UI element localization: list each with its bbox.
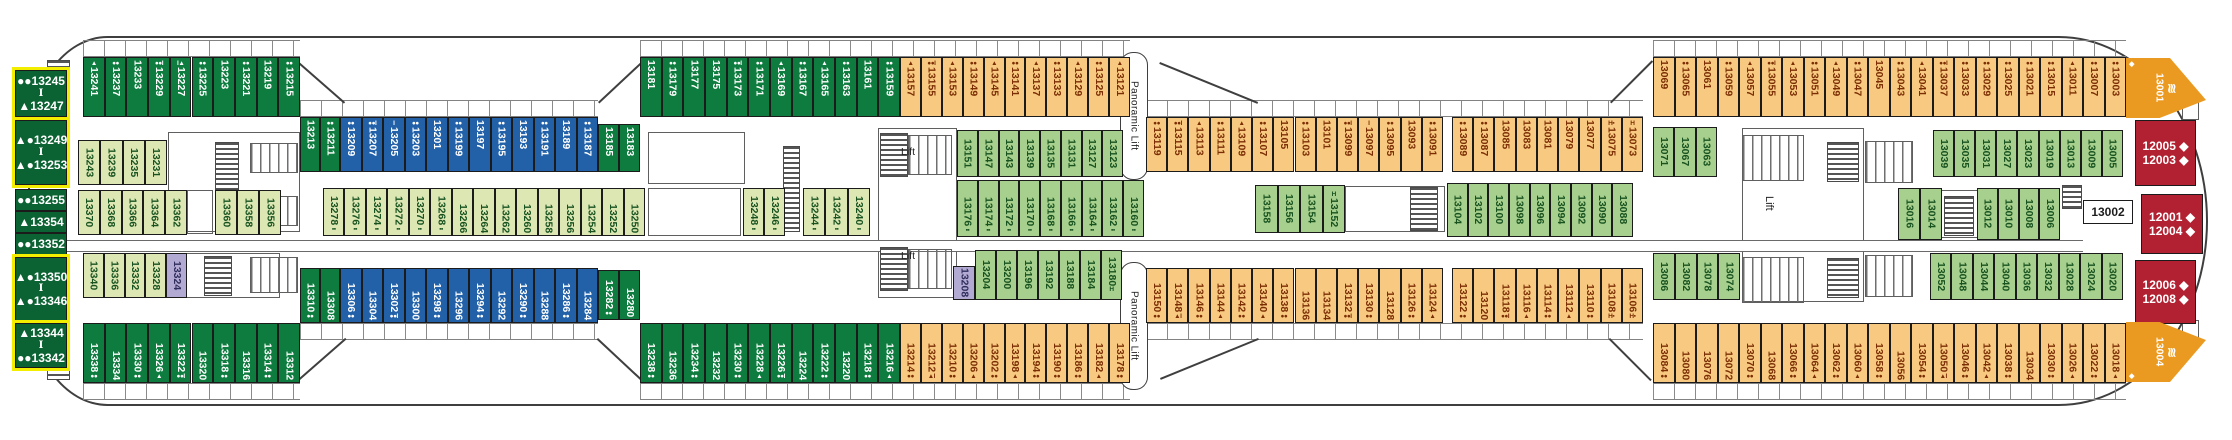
cabin-13152[interactable]: H13152 — [1323, 185, 1346, 233]
cabin-13240[interactable]: 13240▪▪ — [848, 188, 870, 236]
cabin-13068[interactable]: 13068 — [1761, 323, 1783, 383]
cabin-13032[interactable]: 13032 — [2037, 253, 2058, 300]
cabin-13272[interactable]: 13272▪▪ — [387, 188, 408, 236]
cabin-13170[interactable]: 13170▪▪ — [1019, 180, 1040, 237]
cabin-13029[interactable]: ●●13029 — [1976, 57, 1998, 117]
cabin-13188[interactable]: 13188 — [1059, 250, 1080, 300]
cabin-13085[interactable]: 13085 — [1494, 117, 1515, 172]
cabin-13192[interactable]: 13192 — [1038, 250, 1059, 300]
cabin-13220[interactable]: 13220 — [835, 323, 857, 383]
cabin-13221[interactable]: ●●13221 — [235, 57, 257, 117]
cabin-13191[interactable]: ●●13191 — [534, 117, 556, 172]
cabin-13216[interactable]: 13216▲ — [878, 323, 900, 383]
cabin-13062[interactable]: 13062●● — [1825, 323, 1847, 383]
cabin-13234[interactable]: 13234●● — [683, 323, 705, 383]
cabin-13150[interactable]: 13150●● — [1146, 268, 1167, 323]
cabin-13204[interactable]: 13204 — [975, 250, 996, 300]
tip-13255[interactable]: ●●13255 — [15, 189, 67, 211]
cabin-13274[interactable]: 13274▪▪ — [366, 188, 387, 236]
cabin-13089[interactable]: ●●13089 — [1452, 117, 1473, 172]
cabin-13114[interactable]: 13114●● — [1537, 268, 1558, 323]
cabin-13244[interactable]: 13244▪▪ — [803, 188, 825, 236]
cabin-13039[interactable]: 13039 — [1933, 130, 1954, 177]
cabin-13141[interactable]: ●●13141 — [1005, 57, 1026, 117]
cabin-13195[interactable]: ●●13195 — [491, 117, 513, 172]
cabin-13111[interactable]: ●●13111 — [1210, 117, 1231, 172]
cabin-13229[interactable]: ●●I13229 — [148, 57, 170, 117]
cabin-13222[interactable]: 13222●● — [813, 323, 835, 383]
cabin-13056[interactable]: 13056 — [1890, 323, 1912, 383]
cabin-13088[interactable]: 13088 — [1612, 183, 1633, 237]
cabin-13149[interactable]: ●●13149 — [963, 57, 984, 117]
cabin-13177[interactable]: 13177 — [683, 57, 705, 117]
cabin-13248[interactable]: 13248▪▪ — [743, 188, 764, 236]
cabin-13133[interactable]: ●●13133 — [1046, 57, 1067, 117]
cabin-13163[interactable]: ●●13163 — [835, 57, 857, 117]
cabin-13241[interactable]: ▲13241 — [83, 57, 105, 117]
cabin-13116[interactable]: 13116▲ — [1516, 268, 1537, 323]
cabin-13155[interactable]: ●●I13155 — [921, 57, 942, 117]
cabin-13148[interactable]: 13148▲I — [1167, 268, 1188, 323]
cabin-13075[interactable]: H▪13075 — [1601, 117, 1622, 172]
cabin-13028[interactable]: 13028 — [2059, 253, 2080, 300]
cabin-13300[interactable]: 13300 — [405, 268, 427, 323]
cabin-13087[interactable]: ●●13087 — [1473, 117, 1494, 172]
cabin-13358[interactable]: 13358 — [237, 190, 259, 235]
cabin-13073[interactable]: H13073 — [1622, 117, 1643, 172]
cabin-13264[interactable]: 13264 — [473, 188, 494, 236]
cabin-13156[interactable]: 13156 — [1278, 185, 1301, 233]
cabin-13058[interactable]: 13058●● — [1868, 323, 1890, 383]
suite-12005-12003[interactable]: 12005 ◆12003 ◆ — [2135, 120, 2196, 186]
cabin-13118[interactable]: 13118●●I — [1494, 268, 1515, 323]
cabin-13368[interactable]: 13368 — [100, 190, 122, 235]
cabin-13110[interactable]: 13110●● — [1579, 268, 1600, 323]
cabin-13119[interactable]: ●●13119 — [1146, 117, 1167, 172]
cabin-13276[interactable]: 13276▪▪ — [344, 188, 365, 236]
cabin-13018[interactable]: 13018▲ — [2105, 323, 2127, 383]
cabin-13124[interactable]: 13124▲ — [1422, 268, 1443, 323]
cabin-13040[interactable]: 13040 — [1994, 253, 2015, 300]
cabin-13246[interactable]: 13246▪▪ — [764, 188, 785, 236]
cabin-13006[interactable]: 13006 — [2039, 188, 2060, 240]
tip-13354[interactable]: ▲13354 — [15, 211, 67, 233]
cabin-13360[interactable]: 13360 — [215, 190, 237, 235]
cabin-13090[interactable]: 13090 — [1592, 183, 1613, 237]
cabin-13121[interactable]: ▲13121 — [1109, 57, 1130, 117]
cabin-13030[interactable]: 13030●● — [2040, 323, 2062, 383]
cabin-13286[interactable]: 13286●● — [555, 268, 577, 323]
cabin-13223[interactable]: 13223 — [213, 57, 235, 117]
cabin-13235[interactable]: 13235 — [123, 140, 145, 185]
cabin-13101[interactable]: 13101 — [1316, 117, 1337, 172]
cabin-13166[interactable]: 13166▪▪ — [1061, 180, 1082, 237]
cabin-13186[interactable]: 13186●● — [1067, 323, 1088, 383]
cabin-13318[interactable]: 13318●● — [213, 323, 235, 383]
cabin-13138[interactable]: 13138●● — [1273, 268, 1294, 323]
cabin-13364[interactable]: 13364 — [143, 190, 165, 235]
cabin-13019[interactable]: 13019 — [2039, 130, 2060, 177]
cabin-13020[interactable]: 13020 — [2102, 253, 2123, 300]
cabin-13211[interactable]: ●●13211 — [320, 117, 340, 172]
cabin-13189[interactable]: 13189 — [555, 117, 577, 172]
cabin-13326[interactable]: 13326▲ — [148, 323, 170, 383]
cabin-13084[interactable]: 13084●● — [1653, 323, 1675, 383]
cabin-13322[interactable]: 13322●●I — [170, 323, 192, 383]
cabin-13066[interactable]: 13066●● — [1782, 323, 1804, 383]
cabin-13288[interactable]: 13288 — [534, 268, 556, 323]
cabin-13310[interactable]: 13310●● — [300, 268, 320, 323]
cabin-13176[interactable]: 13176▪▪ — [957, 180, 978, 237]
cabin-13008[interactable]: 13008 — [2019, 188, 2040, 240]
cabin-13340[interactable]: 13340 — [83, 253, 104, 298]
cabin-13294[interactable]: 13294●● — [469, 268, 491, 323]
cabin-13016[interactable]: 13016 — [1898, 188, 1920, 240]
cabin-13338[interactable]: 13338●● — [83, 323, 105, 383]
cabin-13071[interactable]: 13071 — [1653, 127, 1674, 177]
cabin-13190[interactable]: 13190●● — [1046, 323, 1067, 383]
cabin-13079[interactable]: 13079 — [1558, 117, 1579, 172]
cabin-13011[interactable]: ▲13011 — [2062, 57, 2084, 117]
cabin-13023[interactable]: 13023 — [2017, 130, 2038, 177]
cabin-13123[interactable]: 13123 — [1102, 130, 1123, 177]
cabin-13096[interactable]: 13096 — [1530, 183, 1551, 237]
cabin-13160[interactable]: 13160▪▪ — [1123, 180, 1144, 237]
suite-12001-12004[interactable]: 12001 ◆12004 ◆ — [2141, 194, 2203, 254]
cabin-13091[interactable]: ●●13091 — [1422, 117, 1443, 172]
cabin-13164[interactable]: 13164▪▪ — [1082, 180, 1103, 237]
cabin-13052[interactable]: 13052 — [1930, 253, 1951, 300]
cabin-13302[interactable]: 13302●●I — [383, 268, 405, 323]
cabin-13076[interactable]: 13076 — [1696, 323, 1718, 383]
cabin-13296[interactable]: 13296 — [448, 268, 470, 323]
cabin-13332[interactable]: 13332 — [125, 253, 146, 298]
cabin-13258[interactable]: 13258 — [538, 188, 559, 236]
cabin-13025[interactable]: ●●13025 — [1997, 57, 2019, 117]
cabin-13167[interactable]: ●●13167 — [792, 57, 814, 117]
cabin-13256[interactable]: 13256 — [559, 188, 580, 236]
cabin-13366[interactable]: 13366 — [122, 190, 144, 235]
cabin-13314[interactable]: 13314●● — [257, 323, 279, 383]
cabin-13278[interactable]: 13278▪▪ — [323, 188, 344, 236]
cabin-13262[interactable]: 13262 — [495, 188, 516, 236]
cabin-13193[interactable]: 13193 — [512, 117, 534, 172]
cabin-13072[interactable]: 13072 — [1718, 323, 1740, 383]
cabin-13139[interactable]: 13139 — [1019, 130, 1040, 177]
cabin-13237[interactable]: ●●13237 — [105, 57, 127, 117]
cabin-13120[interactable]: 13120 — [1473, 268, 1494, 323]
cabin-13171[interactable]: ●●13171 — [748, 57, 770, 117]
cabin-13205[interactable]: I13205 — [383, 117, 405, 172]
cabin-13145[interactable]: ▲13145 — [984, 57, 1005, 117]
cabin-13021[interactable]: ●●13021 — [2019, 57, 2041, 117]
cabin-13304[interactable]: 13304 — [362, 268, 384, 323]
cabin-13178[interactable]: 13178●● — [1109, 323, 1130, 383]
cabin-13086[interactable]: 13086 — [1653, 253, 1675, 300]
cabin-13097[interactable]: I13097 — [1358, 117, 1379, 172]
cabin-13252[interactable]: 13252 — [602, 188, 623, 236]
cabin-13002[interactable]: 13002 — [2083, 200, 2133, 224]
cabin-13324[interactable]: 13324 — [166, 253, 187, 298]
cabin-13231[interactable]: 13231 — [145, 140, 167, 185]
cabin-13054[interactable]: 13054●● — [1911, 323, 1933, 383]
cabin-13137[interactable]: ▲13137 — [1025, 57, 1046, 117]
cabin-13147[interactable]: 13147 — [978, 130, 999, 177]
cabin-13027[interactable]: 13027 — [1996, 130, 2017, 177]
cabin-13151[interactable]: 13151 — [957, 130, 978, 177]
cabin-13316[interactable]: 13316 — [235, 323, 257, 383]
cabin-13202[interactable]: 13202●● — [984, 323, 1005, 383]
cabin-13203[interactable]: ●●13203 — [405, 117, 427, 172]
tip-13249[interactable]: ▲●13249I▲●13253 — [15, 120, 67, 185]
cabin-13102[interactable]: 13102 — [1468, 183, 1489, 237]
cabin-13173[interactable]: ●●I13173 — [727, 57, 749, 117]
cabin-13059[interactable]: ●●13059 — [1718, 57, 1740, 117]
cabin-13038[interactable]: 13038●● — [1997, 323, 2019, 383]
cabin-13115[interactable]: ●●I13115 — [1167, 117, 1188, 172]
cabin-13356[interactable]: 13356 — [259, 190, 281, 235]
cabin-13093[interactable]: 13093 — [1401, 117, 1422, 172]
cabin-13036[interactable]: 13036 — [2016, 253, 2037, 300]
cabin-13074[interactable]: 13074 — [1718, 253, 1740, 300]
cabin-13005[interactable]: 13005 — [2102, 130, 2123, 177]
cabin-13024[interactable]: 13024 — [2080, 253, 2101, 300]
cabin-13179[interactable]: ●●13179 — [662, 57, 684, 117]
cabin-13154[interactable]: 13154 — [1300, 185, 1323, 233]
cabin-13046[interactable]: 13046●● — [1954, 323, 1976, 383]
cabin-13049[interactable]: ▲13049 — [1825, 57, 1847, 117]
cabin-13159[interactable]: ●●13159 — [878, 57, 900, 117]
cabin-13282[interactable]: 13282●● — [598, 270, 619, 320]
cabin-13308[interactable]: 13308 — [320, 268, 340, 323]
cabin-13044[interactable]: 13044 — [1973, 253, 1994, 300]
cabin-13215[interactable]: ●●13215 — [278, 57, 300, 117]
cabin-13158[interactable]: 13158 — [1255, 185, 1278, 233]
cabin-13143[interactable]: 13143 — [999, 130, 1020, 177]
cabin-13125[interactable]: ●●13125 — [1088, 57, 1109, 117]
cabin-13041[interactable]: ▲13041 — [1911, 57, 1933, 117]
cabin-13243[interactable]: 13243 — [78, 140, 100, 185]
cabin-13290[interactable]: 13290●● — [512, 268, 534, 323]
cabin-13069[interactable]: 13069 — [1653, 57, 1675, 117]
cabin-13057[interactable]: ▲13057 — [1739, 57, 1761, 117]
cabin-13048[interactable]: 13048 — [1951, 253, 1972, 300]
cabin-13003[interactable]: ●●13003 — [2105, 57, 2127, 117]
cabin-13080[interactable]: 13080 — [1675, 323, 1697, 383]
cabin-13219[interactable]: 13219 — [257, 57, 279, 117]
cabin-13230[interactable]: 13230●● — [727, 323, 749, 383]
cabin-13270[interactable]: 13270▪▪ — [409, 188, 430, 236]
cabin-13209[interactable]: ●●13209 — [340, 117, 362, 172]
cabin-13172[interactable]: 13172▪▪ — [999, 180, 1020, 237]
cabin-13183[interactable]: 13183 — [619, 124, 640, 172]
cabin-13105[interactable]: 13105 — [1273, 117, 1294, 172]
cabin-13266[interactable]: 13266 — [452, 188, 473, 236]
cabin-13185[interactable]: 13185 — [598, 124, 619, 172]
cabin-13012[interactable]: 13012 — [1977, 188, 1998, 240]
cabin-13009[interactable]: 13009 — [2081, 130, 2102, 177]
cabin-13142[interactable]: 13142●● — [1231, 268, 1252, 323]
cabin-13182[interactable]: 13182▲ — [1088, 323, 1109, 383]
cabin-13013[interactable]: 13013 — [2060, 130, 2081, 177]
cabin-13078[interactable]: 13078 — [1697, 253, 1719, 300]
cabin-13132[interactable]: 13132●●I — [1337, 268, 1358, 323]
cabin-13140[interactable]: 13140▲ — [1252, 268, 1273, 323]
cabin-13022[interactable]: 13022●● — [2083, 323, 2105, 383]
cabin-13051[interactable]: ●●13051 — [1804, 57, 1826, 117]
cabin-13026[interactable]: 13026▲ — [2062, 323, 2084, 383]
cabin-13161[interactable]: 13161 — [857, 57, 879, 117]
cabin-13099[interactable]: ●●I13099 — [1337, 117, 1358, 172]
cabin-13181[interactable]: 13181 — [640, 57, 662, 117]
cabin-13224[interactable]: 13224 — [792, 323, 814, 383]
cabin-13061[interactable]: 13061 — [1696, 57, 1718, 117]
cabin-13050[interactable]: 13050▲I — [1933, 323, 1955, 383]
cabin-13210[interactable]: 13210●● — [942, 323, 963, 383]
cabin-13207[interactable]: ●●I13207 — [362, 117, 384, 172]
cabin-13081[interactable]: 13081 — [1537, 117, 1558, 172]
cabin-13254[interactable]: 13254 — [581, 188, 602, 236]
cabin-13199[interactable]: ●●13199 — [448, 117, 470, 172]
cabin-13162[interactable]: 13162▪▪ — [1102, 180, 1123, 237]
cabin-13242[interactable]: 13242▪▪ — [825, 188, 847, 236]
cabin-13292[interactable]: 13292 — [491, 268, 513, 323]
cabin-13033[interactable]: ●●13033 — [1954, 57, 1976, 117]
cabin-13187[interactable]: ●●13187 — [577, 117, 599, 172]
cabin-13330[interactable]: 13330●● — [126, 323, 148, 383]
cabin-13134[interactable]: 13134 — [1316, 268, 1337, 323]
cabin-13037[interactable]: ●●I13037 — [1933, 57, 1955, 117]
cabin-13136[interactable]: 13136 — [1295, 268, 1316, 323]
cabin-13200[interactable]: 13200 — [996, 250, 1017, 300]
cabin-13146[interactable]: 13146●● — [1188, 268, 1209, 323]
cabin-13135[interactable]: 13135 — [1040, 130, 1061, 177]
cabin-13201[interactable]: 13201 — [426, 117, 448, 172]
cabin-13082[interactable]: 13082 — [1675, 253, 1697, 300]
cabin-13060[interactable]: 13060▲ — [1847, 323, 1869, 383]
cabin-13174[interactable]: 13174▪▪ — [978, 180, 999, 237]
cabin-13144[interactable]: 13144▲ — [1210, 268, 1231, 323]
cabin-13320[interactable]: 13320 — [192, 323, 214, 383]
cabin-13015[interactable]: ●●13015 — [2040, 57, 2062, 117]
cabin-13126[interactable]: 13126●● — [1401, 268, 1422, 323]
cabin-13336[interactable]: 13336 — [104, 253, 125, 298]
cabin-13233[interactable]: 13233 — [126, 57, 148, 117]
cabin-13184[interactable]: 13184 — [1080, 250, 1101, 300]
cabin-13213[interactable]: 13213 — [300, 117, 320, 172]
cabin-13298[interactable]: 13298●● — [426, 268, 448, 323]
cabin-13362[interactable]: 13362 — [165, 190, 187, 235]
cabin-13031[interactable]: 13031 — [1975, 130, 1996, 177]
cabin-13107[interactable]: ●●13107 — [1252, 117, 1273, 172]
cabin-13180[interactable]: 13180H — [1101, 250, 1122, 300]
cabin-13128[interactable]: 13128 — [1379, 268, 1400, 323]
cabin-13226[interactable]: 13226●●I — [770, 323, 792, 383]
cabin-13077[interactable]: 13077 — [1579, 117, 1600, 172]
cabin-13047[interactable]: ●●13047 — [1847, 57, 1869, 117]
cabin-13197[interactable]: 13197 — [469, 117, 491, 172]
cabin-13010[interactable]: 13010 — [1998, 188, 2019, 240]
cabin-13169[interactable]: ▲13169 — [770, 57, 792, 117]
cabin-13065[interactable]: ●●13065 — [1675, 57, 1697, 117]
cabin-13280[interactable]: 13280 — [619, 270, 640, 320]
cabin-13053[interactable]: ▲13053 — [1782, 57, 1804, 117]
cabin-13127[interactable]: 13127 — [1082, 130, 1103, 177]
cabin-13109[interactable]: ▲13109 — [1231, 117, 1252, 172]
cabin-13218[interactable]: 13218●● — [857, 323, 879, 383]
cabin-13063[interactable]: 13063 — [1696, 127, 1717, 177]
cabin-13094[interactable]: 13094 — [1550, 183, 1571, 237]
cabin-13129[interactable]: ▲13129 — [1067, 57, 1088, 117]
cabin-13168[interactable]: 13168▪▪ — [1040, 180, 1061, 237]
cabin-13268[interactable]: 13268▪▪ — [430, 188, 451, 236]
cabin-13153[interactable]: ▲13153 — [942, 57, 963, 117]
cabin-13131[interactable]: 13131 — [1061, 130, 1082, 177]
cabin-13100[interactable]: 13100 — [1488, 183, 1509, 237]
cabin-13112[interactable]: 13112▲ — [1558, 268, 1579, 323]
tip-13344[interactable]: ▲13344I●●13342 — [15, 323, 67, 368]
cabin-13055[interactable]: ●●I13055 — [1761, 57, 1783, 117]
cabin-13043[interactable]: ●●13043 — [1890, 57, 1912, 117]
cabin-13208[interactable]: 13208 — [953, 266, 975, 300]
cabin-13196[interactable]: 13196 — [1017, 250, 1038, 300]
cabin-13328[interactable]: 13328 — [145, 253, 166, 298]
cabin-13130[interactable]: 13130●● — [1358, 268, 1379, 323]
tip-13352[interactable]: ●●13352 — [15, 233, 67, 255]
cabin-13232[interactable]: 13232 — [705, 323, 727, 383]
cabin-13098[interactable]: 13098 — [1509, 183, 1530, 237]
cabin-13238[interactable]: 13238●● — [640, 323, 662, 383]
cabin-13165[interactable]: ▲13165 — [813, 57, 835, 117]
tip-13350[interactable]: ▲●13350I▲●13346 — [15, 257, 67, 321]
cabin-13236[interactable]: 13236 — [662, 323, 684, 383]
cabin-13035[interactable]: 13035 — [1954, 130, 1975, 177]
cabin-13103[interactable]: ●●13103 — [1295, 117, 1316, 172]
cabin-13227[interactable]: I▲13227 — [170, 57, 192, 117]
cabin-13108[interactable]: 13108H▪ — [1601, 268, 1622, 323]
cabin-13214[interactable]: 13214●● — [900, 323, 921, 383]
cabin-13284[interactable]: 13284 — [577, 268, 599, 323]
cabin-13113[interactable]: ▲13113 — [1188, 117, 1209, 172]
cabin-13370[interactable]: 13370 — [78, 190, 100, 235]
cabin-13083[interactable]: 13083 — [1516, 117, 1537, 172]
cabin-13095[interactable]: ●●13095 — [1379, 117, 1400, 172]
cabin-13067[interactable]: 13067 — [1674, 127, 1695, 177]
cabin-13157[interactable]: ▲13157 — [900, 57, 921, 117]
tip-13245[interactable]: ●●13245I▲13247 — [15, 70, 67, 117]
cabin-13206[interactable]: 13206▲ — [963, 323, 984, 383]
cabin-13194[interactable]: 13194●● — [1025, 323, 1046, 383]
cabin-13225[interactable]: ●●13225 — [192, 57, 214, 117]
cabin-13070[interactable]: 13070●● — [1739, 323, 1761, 383]
cabin-13306[interactable]: 13306●● — [340, 268, 362, 323]
cabin-13106[interactable]: 13106H▪ — [1622, 268, 1643, 323]
cabin-13250[interactable]: 13250 — [624, 188, 645, 236]
cabin-13014[interactable]: 13014 — [1920, 188, 1942, 240]
cabin-13239[interactable]: 13239 — [100, 140, 122, 185]
cabin-13045[interactable]: 13045 — [1868, 57, 1890, 117]
cabin-13334[interactable]: 13334 — [105, 323, 127, 383]
cabin-13007[interactable]: ●●13007 — [2083, 57, 2105, 117]
cabin-13034[interactable]: 13034 — [2019, 323, 2041, 383]
cabin-13260[interactable]: 13260 — [516, 188, 537, 236]
cabin-13198[interactable]: 13198▲ — [1005, 323, 1026, 383]
cabin-13064[interactable]: 13064▲ — [1804, 323, 1826, 383]
cabin-13312[interactable]: 13312 — [278, 323, 300, 383]
cabin-13212[interactable]: 13212▲I — [921, 323, 942, 383]
cabin-13042[interactable]: 13042▲ — [1976, 323, 1998, 383]
cabin-13104[interactable]: 13104 — [1447, 183, 1468, 237]
